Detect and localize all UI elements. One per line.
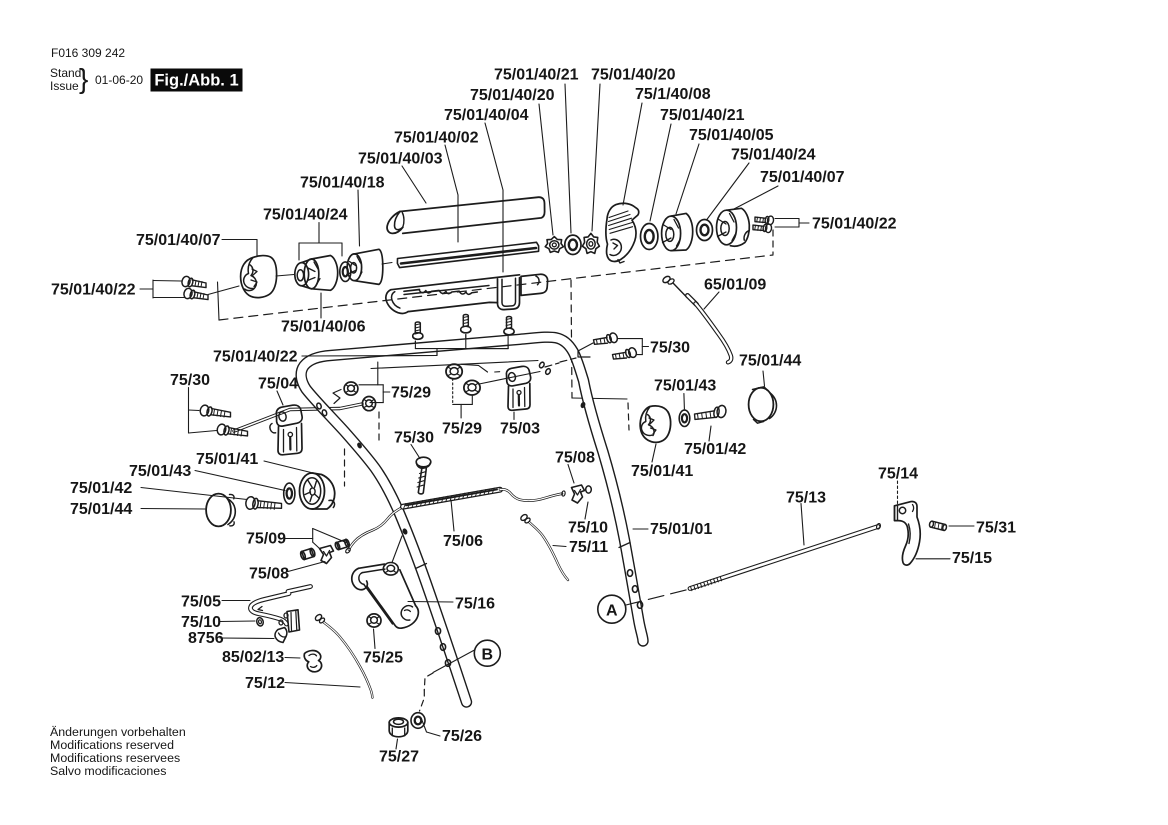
svg-text:75/10: 75/10 [181, 614, 221, 631]
svg-text:75/01/40/21: 75/01/40/21 [494, 67, 579, 84]
svg-text:A: A [606, 603, 618, 620]
svg-text:75/12: 75/12 [245, 675, 285, 692]
svg-text:75/01/43: 75/01/43 [129, 463, 191, 480]
svg-text:75/03: 75/03 [500, 421, 540, 438]
svg-text:75/27: 75/27 [379, 749, 419, 766]
svg-text:75/01/01: 75/01/01 [650, 521, 712, 538]
svg-text:01-06-20: 01-06-20 [95, 73, 143, 87]
svg-text:75/01/43: 75/01/43 [654, 378, 716, 395]
svg-text:B: B [482, 647, 494, 664]
svg-text:75/08: 75/08 [555, 450, 595, 467]
svg-text:75/01/40/20: 75/01/40/20 [591, 67, 676, 84]
svg-text:65/01/09: 65/01/09 [704, 277, 766, 294]
svg-text:75/11: 75/11 [569, 539, 608, 556]
svg-text:Issue: Issue [50, 79, 79, 93]
svg-text:75/01/40/07: 75/01/40/07 [136, 232, 221, 249]
svg-text:75/29: 75/29 [391, 385, 431, 402]
svg-text:75/31: 75/31 [976, 520, 1016, 537]
svg-text:F016 309 242: F016 309 242 [51, 46, 125, 60]
svg-text:75/01/40/05: 75/01/40/05 [689, 127, 774, 144]
svg-text:Modifications reserved: Modifications reserved [50, 738, 174, 752]
svg-text:75/01/40/04: 75/01/40/04 [444, 107, 529, 124]
svg-text:}: } [79, 63, 88, 94]
svg-text:75/25: 75/25 [363, 650, 403, 667]
svg-text:75/01/40/22: 75/01/40/22 [51, 282, 136, 299]
svg-text:75/30: 75/30 [170, 372, 210, 389]
svg-text:75/01/40/21: 75/01/40/21 [660, 107, 745, 124]
svg-text:75/06: 75/06 [443, 533, 483, 550]
svg-text:75/01/42: 75/01/42 [684, 441, 746, 458]
svg-text:75/09: 75/09 [246, 531, 286, 548]
svg-text:75/05: 75/05 [181, 594, 221, 611]
svg-text:Salvo modificaciones: Salvo modificaciones [50, 764, 166, 778]
svg-text:75/13: 75/13 [786, 490, 826, 507]
svg-text:75/1/40/08: 75/1/40/08 [635, 86, 711, 103]
svg-text:75/08: 75/08 [249, 566, 289, 583]
svg-text:75/01/40/20: 75/01/40/20 [470, 87, 555, 104]
svg-text:8756: 8756 [188, 630, 224, 647]
svg-text:75/01/42: 75/01/42 [70, 480, 132, 497]
svg-text:75/01/40/24: 75/01/40/24 [731, 147, 816, 164]
svg-text:Modifications reservees: Modifications reservees [50, 751, 180, 765]
svg-text:75/01/41: 75/01/41 [196, 451, 258, 468]
svg-text:75/10: 75/10 [568, 520, 608, 537]
svg-text:85/02/13: 85/02/13 [222, 649, 284, 666]
svg-text:75/14: 75/14 [878, 466, 918, 483]
svg-text:Änderungen vorbehalten: Änderungen vorbehalten [50, 725, 186, 739]
svg-text:75/01/40/06: 75/01/40/06 [281, 319, 366, 336]
svg-text:75/01/40/02: 75/01/40/02 [394, 130, 479, 147]
svg-text:75/01/40/18: 75/01/40/18 [300, 175, 385, 192]
svg-text:75/04: 75/04 [258, 376, 298, 393]
svg-text:75/01/40/07: 75/01/40/07 [760, 169, 845, 186]
svg-text:75/01/44: 75/01/44 [739, 353, 801, 370]
svg-text:75/30: 75/30 [394, 430, 434, 447]
svg-text:75/01/40/22: 75/01/40/22 [812, 216, 897, 233]
svg-text:75/01/44: 75/01/44 [70, 501, 132, 518]
svg-text:Stand: Stand [50, 66, 81, 80]
svg-text:75/29: 75/29 [442, 421, 482, 438]
svg-text:75/16: 75/16 [455, 596, 495, 613]
svg-text:75/01/40/22: 75/01/40/22 [213, 349, 298, 366]
svg-text:75/15: 75/15 [952, 550, 992, 567]
svg-text:75/01/41: 75/01/41 [631, 463, 693, 480]
svg-text:75/30: 75/30 [650, 340, 690, 357]
svg-text:75/01/40/03: 75/01/40/03 [358, 151, 443, 168]
svg-text:75/01/40/24: 75/01/40/24 [263, 207, 348, 224]
svg-text:Fig./Abb. 1: Fig./Abb. 1 [154, 72, 238, 90]
svg-text:75/26: 75/26 [442, 728, 482, 745]
